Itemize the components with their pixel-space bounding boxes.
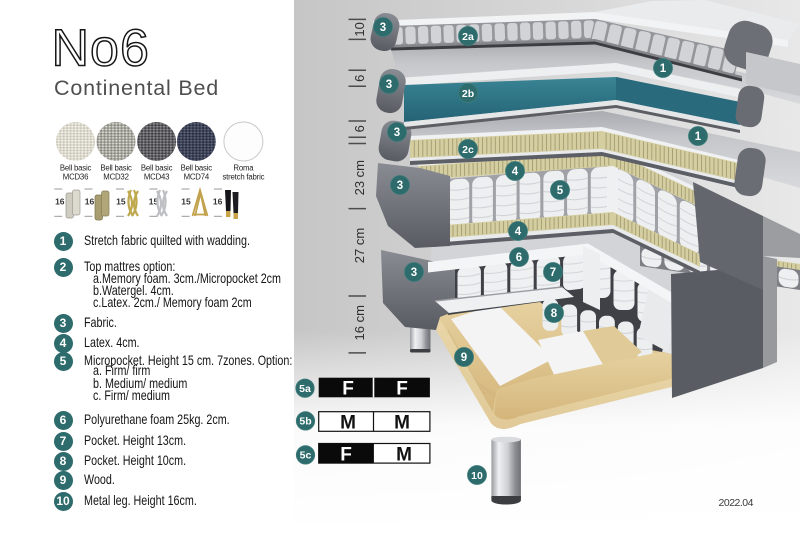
svg-text:6: 6 — [352, 125, 367, 132]
svg-text:M: M — [340, 413, 356, 434]
svg-text:2b: 2b — [462, 88, 474, 100]
svg-text:9: 9 — [461, 352, 467, 364]
svg-text:6: 6 — [516, 252, 522, 264]
svg-text:3: 3 — [380, 22, 386, 34]
svg-text:10: 10 — [352, 22, 367, 36]
svg-text:2c: 2c — [462, 144, 474, 156]
svg-text:23 cm: 23 cm — [352, 160, 367, 195]
svg-text:3: 3 — [397, 180, 403, 192]
svg-text:5c: 5c — [300, 450, 312, 462]
svg-text:27 cm: 27 cm — [352, 228, 367, 263]
svg-text:1: 1 — [660, 63, 667, 75]
svg-text:7: 7 — [550, 267, 556, 279]
svg-text:3: 3 — [386, 79, 392, 91]
svg-text:F: F — [340, 444, 352, 465]
svg-text:2a: 2a — [462, 31, 474, 43]
svg-text:F: F — [342, 379, 354, 400]
svg-text:5: 5 — [557, 185, 564, 197]
svg-text:F: F — [396, 379, 408, 400]
svg-text:1: 1 — [695, 131, 702, 143]
svg-text:4: 4 — [512, 166, 519, 178]
svg-text:3: 3 — [394, 127, 400, 139]
svg-text:10: 10 — [471, 470, 483, 482]
svg-text:2022.04: 2022.04 — [719, 497, 754, 509]
svg-text:5a: 5a — [299, 383, 311, 395]
svg-text:3: 3 — [411, 267, 417, 279]
svg-text:4: 4 — [515, 226, 522, 238]
svg-text:M: M — [394, 413, 410, 434]
svg-text:5b: 5b — [299, 416, 311, 428]
svg-text:M: M — [396, 444, 412, 465]
svg-text:8: 8 — [551, 308, 558, 320]
svg-text:6: 6 — [352, 75, 367, 82]
svg-text:16 cm: 16 cm — [352, 305, 367, 340]
